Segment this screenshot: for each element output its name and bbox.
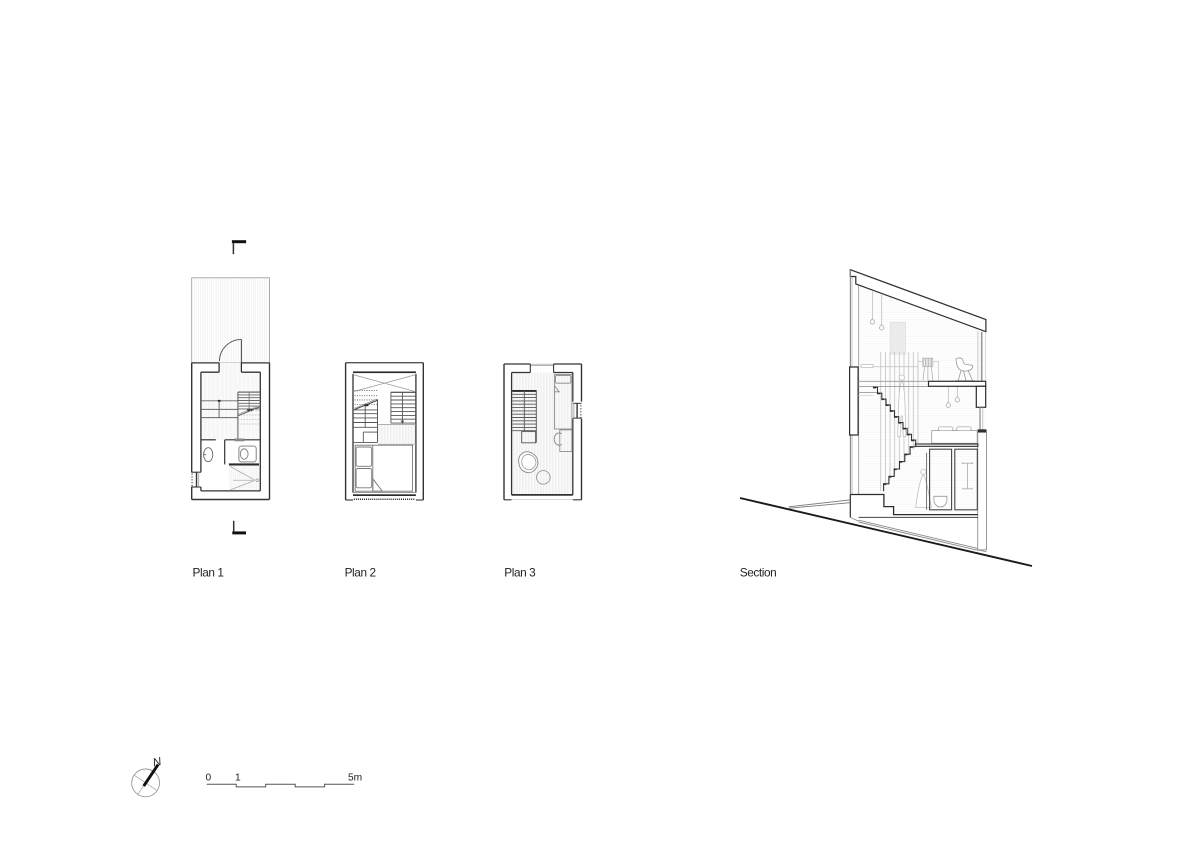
svg-text:1: 1	[235, 773, 241, 784]
svg-text:Section: Section	[740, 566, 777, 580]
svg-text:Plan 1: Plan 1	[193, 566, 224, 580]
svg-text:Plan 3: Plan 3	[504, 566, 536, 580]
svg-text:Plan 2: Plan 2	[345, 566, 376, 580]
svg-text:0: 0	[206, 773, 212, 784]
svg-text:5m: 5m	[348, 773, 362, 784]
